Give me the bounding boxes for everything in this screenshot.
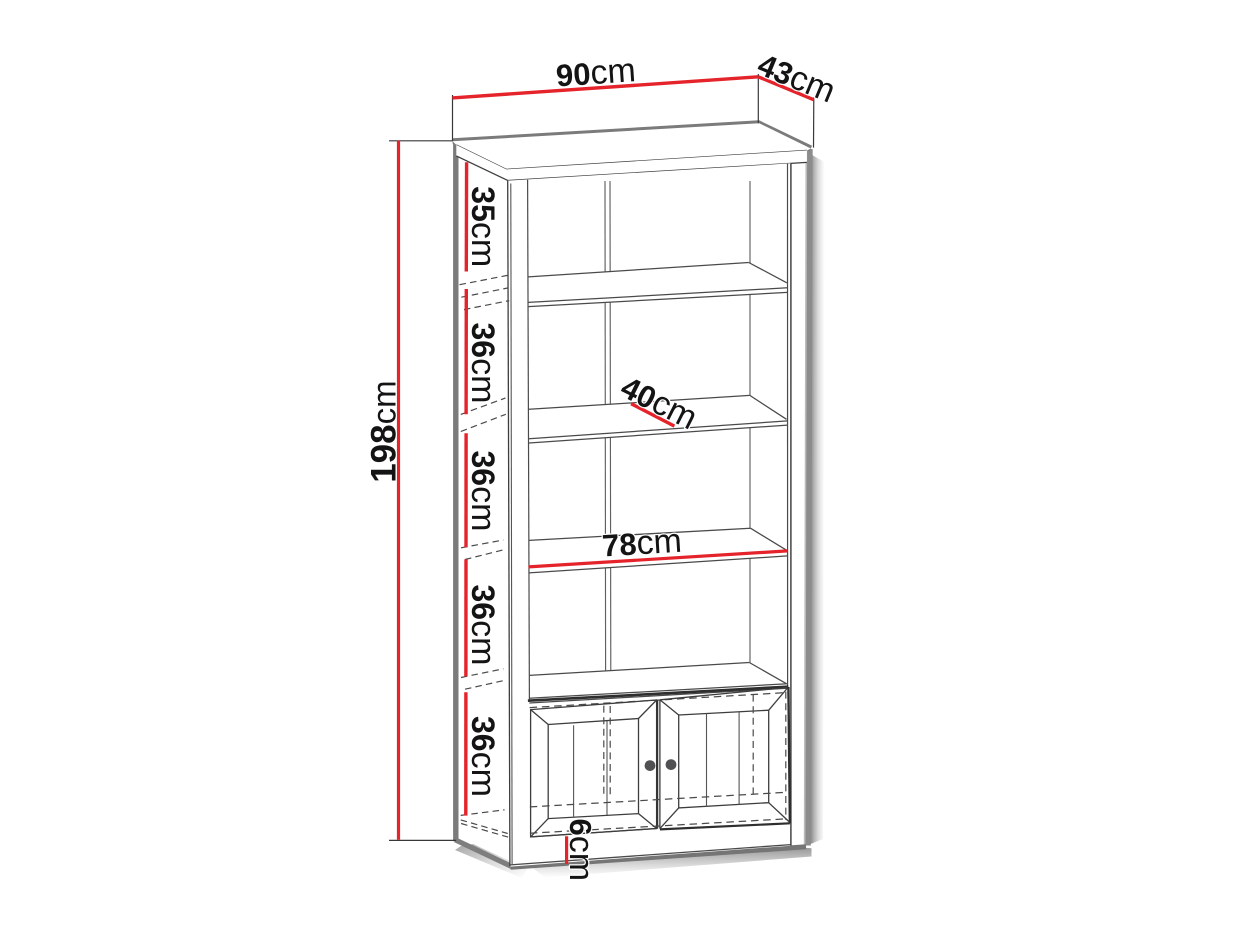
svg-text:36cm: 36cm <box>464 451 502 532</box>
svg-text:6cm: 6cm <box>562 819 600 882</box>
svg-text:36cm: 36cm <box>464 716 502 797</box>
svg-text:90cm: 90cm <box>555 51 637 94</box>
svg-text:36cm: 36cm <box>464 323 502 404</box>
svg-text:78cm: 78cm <box>601 522 683 565</box>
svg-text:36cm: 36cm <box>464 585 502 666</box>
svg-text:198cm: 198cm <box>364 380 403 482</box>
svg-text:35cm: 35cm <box>464 186 502 267</box>
